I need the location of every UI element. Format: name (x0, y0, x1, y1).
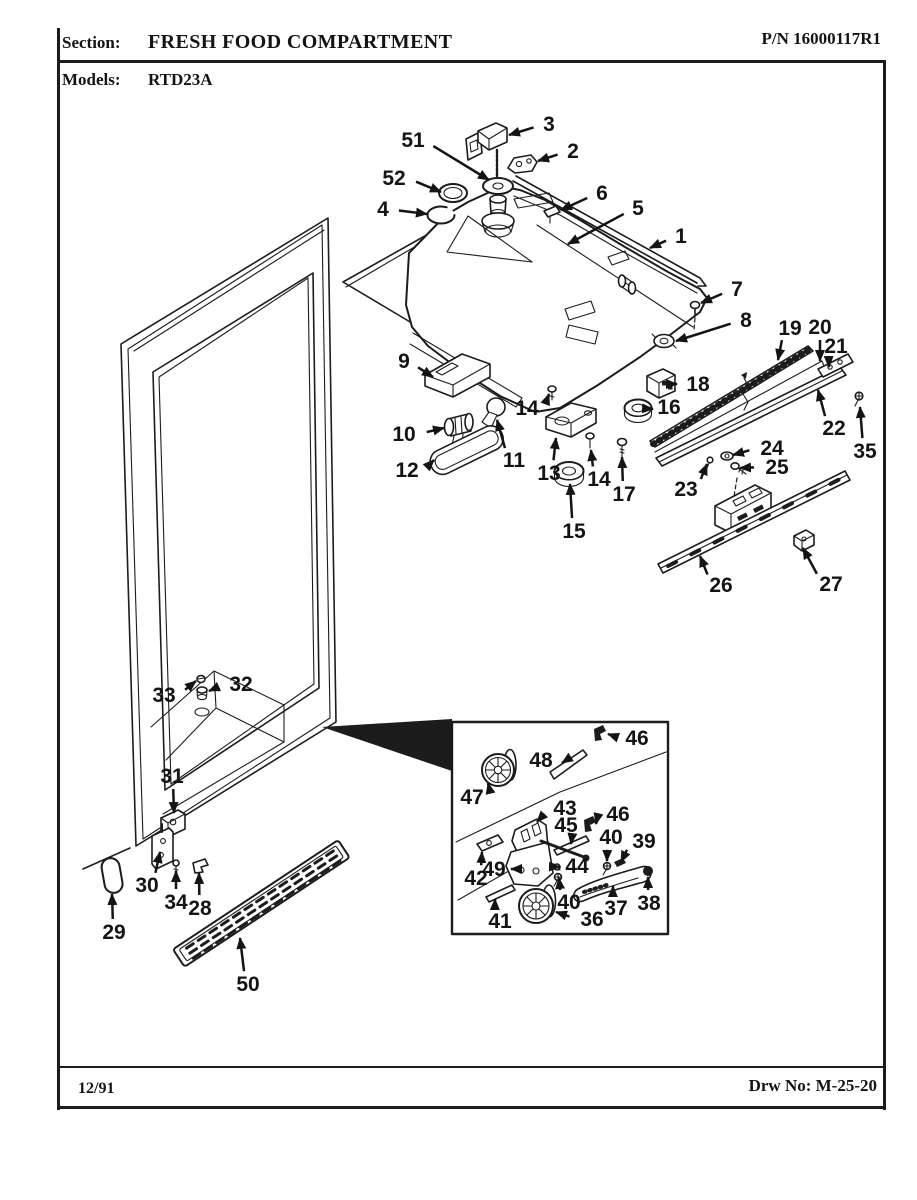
callout-6: 6 (561, 182, 608, 210)
callout-label: 48 (529, 749, 553, 772)
callout-label: 52 (382, 167, 405, 190)
callout-label: 38 (637, 892, 661, 915)
callout-label: 47 (460, 786, 483, 809)
callout-label: 2 (567, 140, 579, 163)
callout-label: 5 (632, 197, 644, 220)
callout-13: 13 (537, 438, 560, 485)
callout-35: 35 (853, 407, 877, 463)
callout-label: 37 (604, 897, 627, 920)
callout-label: 9 (398, 350, 410, 373)
callout-label: 8 (740, 309, 752, 332)
washer (721, 452, 733, 460)
callout-label: 18 (686, 373, 710, 396)
callout-label: 39 (632, 830, 655, 853)
callout-label: 17 (612, 483, 635, 506)
liner-screw (197, 676, 205, 683)
callout-2: 2 (538, 140, 579, 163)
callout-label: 33 (152, 684, 175, 707)
callout-7: 7 (701, 278, 743, 303)
callout-28: 28 (188, 873, 212, 920)
end-cap (100, 857, 124, 895)
retainer-clip (508, 155, 537, 173)
callout-label: 15 (562, 520, 586, 543)
callout-label: 46 (625, 727, 648, 750)
callout-label: 1 (675, 225, 687, 248)
screw (618, 439, 627, 458)
callout-27: 27 (803, 548, 843, 596)
callout-label: 46 (606, 803, 629, 826)
lamp-bracket (425, 354, 490, 397)
callout-label: 44 (565, 855, 589, 878)
screw (586, 433, 594, 448)
callout-label: 30 (135, 874, 158, 897)
open-cap (428, 207, 455, 224)
callout-label: 6 (596, 182, 608, 205)
callout-29: 29 (102, 894, 125, 944)
cabinet-outline (83, 218, 336, 869)
callout-label: 50 (236, 973, 259, 996)
callout-label: 28 (188, 897, 212, 920)
manual-page: Section: FRESH FOOD COMPARTMENT P/N 1600… (0, 0, 917, 1200)
callout-label: 32 (229, 673, 252, 696)
callout-label: 16 (657, 396, 680, 419)
grommet (625, 400, 652, 423)
callout-label: 14 (587, 468, 611, 491)
callout-4: 4 (377, 198, 427, 221)
callout-34: 34 (164, 871, 188, 914)
callout-18: 18 (675, 373, 710, 396)
callout-26: 26 (700, 556, 733, 597)
inset-pointer-wedge (322, 719, 452, 771)
callout-label: 26 (709, 574, 732, 597)
hinge-clip (193, 859, 208, 873)
callout-label: 49 (482, 858, 505, 881)
light-bulb (482, 398, 505, 428)
callout-15: 15 (562, 484, 586, 543)
screw (707, 457, 713, 468)
callout-17: 17 (612, 457, 635, 506)
callout-label: 12 (395, 459, 418, 482)
hole-cap (439, 184, 467, 202)
callout-label: 45 (554, 814, 578, 837)
callout-22: 22 (818, 390, 846, 440)
callout-23: 23 (674, 464, 707, 501)
callout-31: 31 (160, 765, 184, 813)
callout-1: 1 (650, 225, 687, 248)
callout-50: 50 (236, 938, 259, 996)
callout-label: 40 (599, 826, 622, 849)
spacer-block (647, 369, 675, 398)
callout-label: 29 (102, 921, 125, 944)
callout-label: 4 (377, 198, 389, 221)
callout-12: 12 (395, 459, 434, 482)
callout-label: 10 (392, 423, 415, 446)
callout-label: 23 (674, 478, 697, 501)
callout-label: 3 (543, 113, 555, 136)
callout-label: 13 (537, 462, 560, 485)
callout-label: 27 (819, 573, 842, 596)
callout-label: 41 (488, 910, 512, 933)
callout-label: 22 (822, 417, 845, 440)
exploded-parts-diagram: 1234567891011121314141516171819202122232… (0, 0, 917, 1200)
hanger-rails (650, 346, 863, 573)
callout-25: 25 (740, 456, 789, 479)
arm-knob (643, 866, 653, 876)
callout-label: 36 (580, 908, 603, 931)
callout-label: 31 (160, 765, 184, 788)
callout-label: 35 (853, 440, 877, 463)
callout-label: 11 (503, 449, 526, 472)
callout-label: 40 (557, 891, 580, 914)
callout-label: 19 (778, 317, 801, 340)
callout-label: 51 (401, 129, 425, 152)
liner-grommet (197, 687, 207, 700)
callout-3: 3 (509, 113, 555, 136)
mount-bracket (466, 123, 507, 160)
callout-label: 34 (164, 891, 188, 914)
callout-label: 21 (824, 335, 848, 358)
callout-label: 7 (731, 278, 743, 301)
callout-52: 52 (382, 167, 441, 192)
callout-10: 10 (392, 423, 444, 446)
callout-label: 14 (515, 397, 539, 420)
screw (855, 392, 863, 406)
callout-14: 14 (587, 450, 611, 491)
callout-label: 25 (765, 456, 789, 479)
callout-33: 33 (152, 681, 196, 707)
liner-hole (195, 708, 209, 716)
